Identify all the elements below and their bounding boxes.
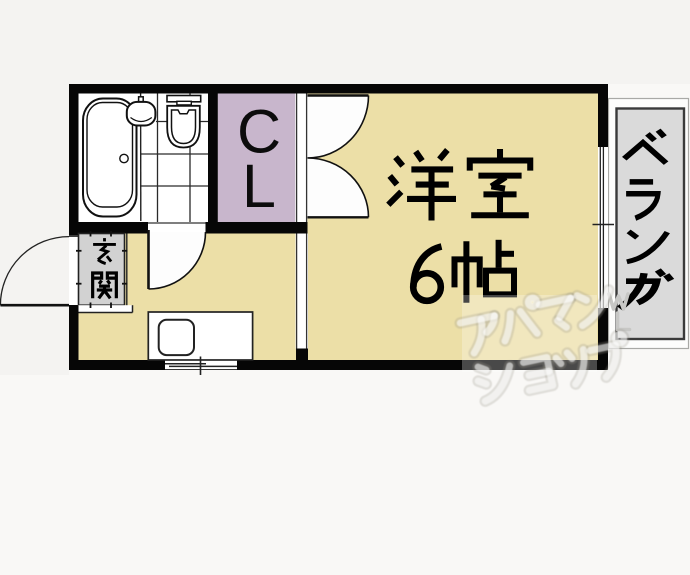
svg-text:L: L xyxy=(242,152,276,220)
